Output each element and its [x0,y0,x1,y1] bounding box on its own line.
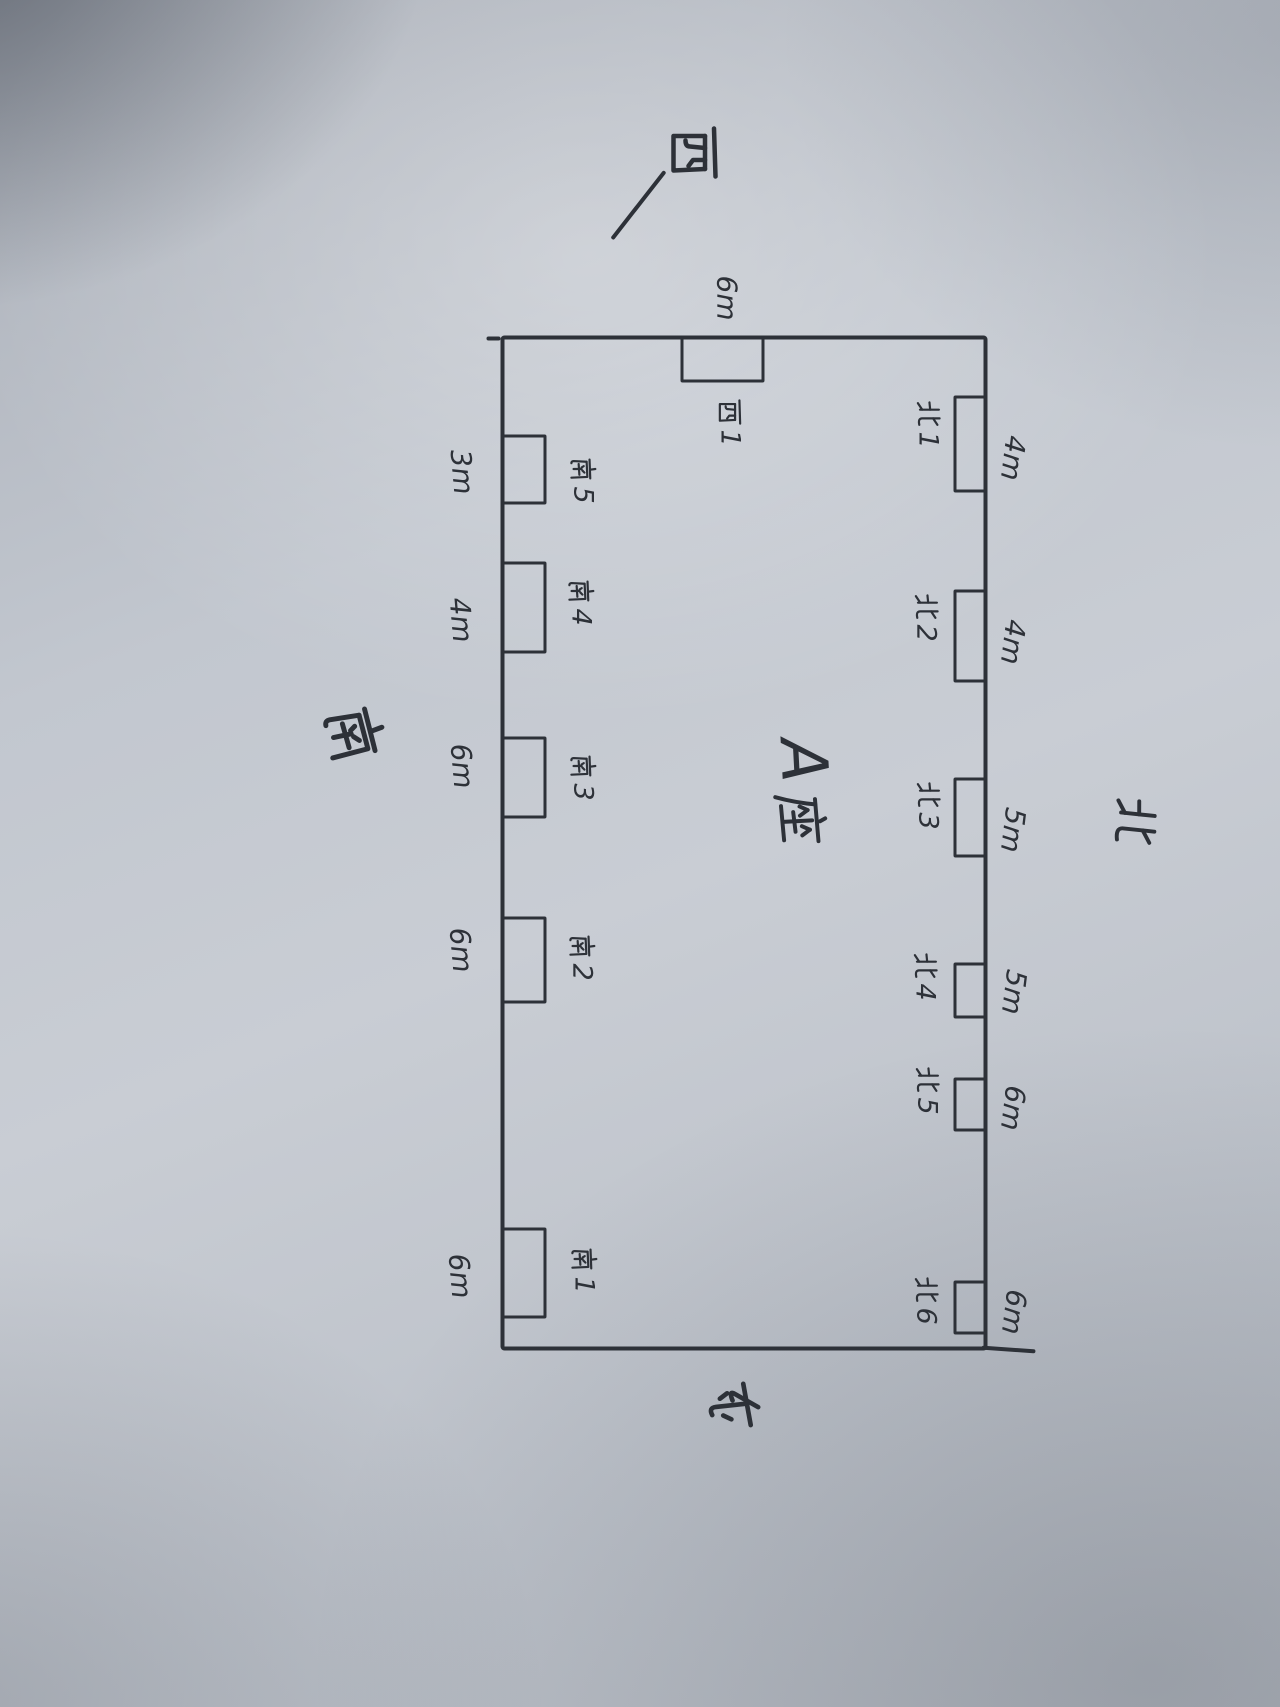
north-char-icon [912,1065,941,1094]
building-outline: 1 2 3 4 5 6 4m 4m 5m 5m 6m 6m 5 4 3 2 1 … [500,335,987,1350]
window-number: 6 [910,1307,941,1324]
compass-west [660,122,724,182]
dim-south-2: 6m [442,926,479,974]
dim-north-2: 4m [993,617,1031,666]
window-label-west-1: 1 [714,397,745,446]
window-label-north-2: 2 [910,592,941,641]
floor-plan-sketch: 1 2 3 4 5 6 4m 4m 5m 5m 6m 6m 5 4 3 2 1 … [0,0,1280,1707]
south-char-icon [566,576,595,605]
window-south-5 [500,434,546,504]
window-south-1 [500,1227,546,1318]
pen-overshoot-stroke [981,1345,1035,1353]
south-char-icon [568,751,597,780]
dim-north-1: 4m [993,433,1031,482]
window-west-1 [680,335,764,382]
window-label-north-1: 1 [912,399,943,448]
pen-overshoot-stroke [486,336,500,340]
window-number: 1 [714,429,745,446]
window-label-south-1: 1 [568,1244,599,1293]
compass-east [693,1371,765,1440]
west-char-icon [664,122,724,182]
north-char-icon [1105,793,1162,850]
window-label-south-4: 4 [565,576,596,625]
window-label-north-3: 3 [912,780,943,829]
window-north-2 [953,589,987,682]
north-char-icon [911,1275,940,1304]
compass-south [311,693,393,772]
window-south-4 [500,561,546,653]
window-number: 5 [911,1097,942,1114]
window-label-north-6: 6 [910,1275,941,1324]
south-char-icon [569,1244,598,1273]
building-name-label: A [765,736,839,849]
dim-north-5: 6m [993,1083,1031,1132]
west-char-icon [715,397,744,426]
window-label-south-5: 5 [567,454,598,503]
north-char-icon [910,951,939,980]
window-north-4 [953,962,987,1018]
dim-west-1: 6m [710,275,743,320]
window-number: 1 [568,1276,599,1293]
window-number: 2 [910,624,941,641]
window-label-south-2: 2 [566,931,597,980]
dim-north-4: 5m [994,967,1032,1016]
window-south-3 [500,736,546,818]
north-char-icon [913,780,942,809]
window-number: 3 [912,812,943,829]
window-south-2 [500,916,546,1003]
window-number: 4 [565,608,596,625]
compass-north [1101,792,1162,850]
window-number: 1 [912,431,943,448]
dim-south-3: 6m [443,742,480,790]
north-char-icon [913,399,942,428]
east-char-icon [697,1371,765,1439]
zuo-char-icon [768,789,829,850]
pen-slash-stroke [610,170,666,240]
dim-south-5: 3m [443,448,480,496]
building-letter: A [769,736,835,783]
south-char-icon [567,931,596,960]
window-label-south-3: 3 [567,751,598,800]
window-label-north-4: 4 [909,951,940,1000]
dim-north-6: 6m [994,1287,1032,1336]
window-number: 3 [567,783,598,800]
photo-of-sketch: { "plan": { "center_label": { "letter": … [0,0,1280,1707]
window-number: 2 [566,963,597,980]
dim-south-1: 6m [441,1252,478,1300]
south-char-icon [315,693,393,771]
dim-south-4: 4m [442,596,479,644]
window-north-6 [953,1280,987,1334]
window-north-1 [953,395,987,492]
north-char-icon [911,592,940,621]
window-number: 4 [909,983,940,1000]
window-north-5 [953,1077,987,1131]
south-char-icon [568,454,597,483]
window-label-north-5: 5 [911,1065,942,1114]
window-north-3 [953,777,987,857]
dim-north-3: 5m [993,805,1031,854]
window-number: 5 [567,486,598,503]
